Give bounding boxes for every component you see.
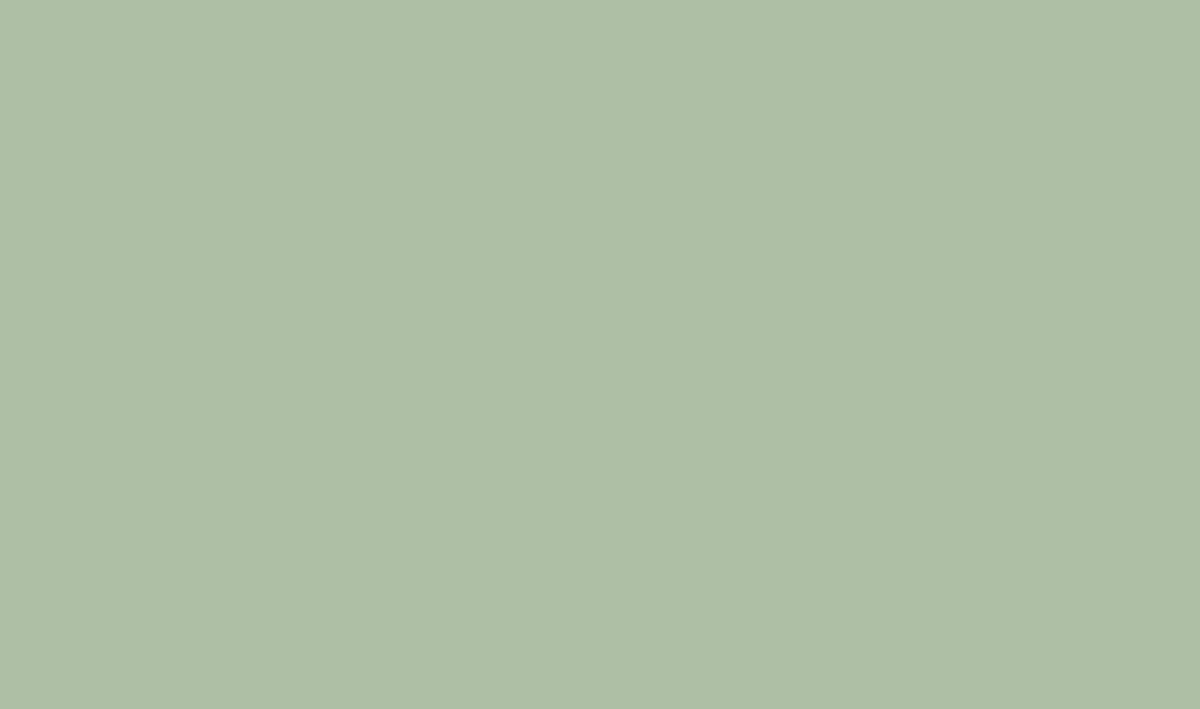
rendering-canvas	[0, 0, 1200, 709]
aerial-scene-svg	[0, 0, 1200, 709]
